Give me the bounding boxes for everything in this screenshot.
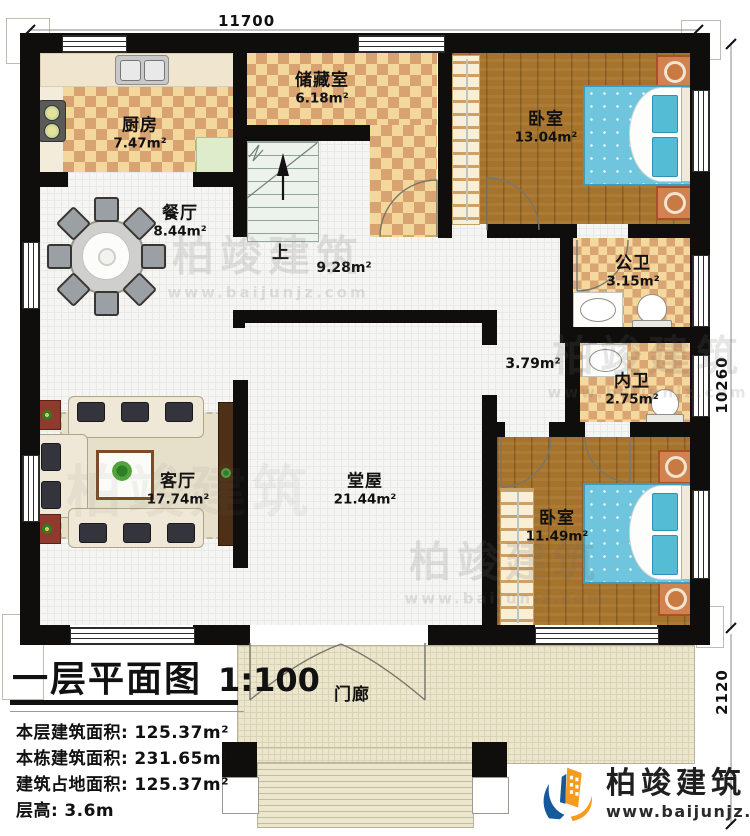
- window: [22, 455, 40, 522]
- dining-chair: [94, 197, 119, 222]
- sofa-cushion: [121, 402, 149, 422]
- porch-column-base: [472, 777, 509, 814]
- nightstand: [656, 186, 694, 220]
- wall: [565, 343, 580, 422]
- sofa-bottom: [68, 508, 204, 548]
- dining-chair: [94, 291, 119, 316]
- sink-basin: [580, 298, 616, 322]
- brand-text-block: 柏竣建筑 www.baijunjz.com: [606, 769, 750, 821]
- window: [62, 35, 127, 53]
- window: [692, 90, 710, 172]
- brand-logo: 柏竣建筑 www.baijunjz.com: [540, 762, 750, 828]
- window: [692, 490, 710, 579]
- ensuite-bath-label: 内卫 2.75m²: [605, 372, 658, 407]
- burner-icon: [44, 123, 60, 139]
- dimension-bottom-right: 2120: [713, 669, 731, 715]
- brand-logo-icon: [540, 762, 598, 828]
- stat-row: 本栋建筑面积:231.65m²: [16, 746, 229, 772]
- bedroom-top-label: 卧室 13.04m²: [515, 110, 578, 145]
- bed: [583, 483, 694, 584]
- burner-icon: [44, 105, 60, 121]
- plan-scale: 1:100: [218, 661, 320, 699]
- wall: [560, 238, 573, 327]
- window: [22, 242, 40, 309]
- plant: [112, 461, 132, 481]
- sofa-cushion: [77, 402, 105, 422]
- wall: [630, 422, 710, 437]
- staircase: [247, 141, 319, 242]
- pillow: [652, 137, 678, 177]
- porch-label: 门廊: [334, 686, 370, 706]
- wall: [233, 310, 245, 328]
- nightstand: [658, 450, 694, 484]
- plan-title-text: 一层平面图: [12, 650, 202, 702]
- hall-label: 堂屋 21.44m²: [334, 472, 397, 507]
- wall: [438, 53, 452, 238]
- window: [692, 255, 710, 327]
- storage-label: 储藏室 6.18m²: [295, 71, 349, 106]
- brand-url: www.baijunjz.com: [606, 802, 750, 821]
- pillow: [652, 535, 678, 575]
- sofa-cushion: [123, 523, 151, 543]
- dining-table-center: [98, 248, 116, 266]
- bedroom-bottom-label: 卧室 11.49m²: [526, 509, 589, 544]
- title-underline: [10, 700, 238, 705]
- plan-title: 一层平面图 1:100: [12, 650, 320, 702]
- pillow: [652, 95, 678, 133]
- sofa-cushion: [41, 443, 61, 471]
- pillow: [652, 493, 678, 531]
- sofa-cushion: [165, 402, 193, 422]
- wall: [628, 224, 710, 238]
- sofa-top: [68, 396, 204, 438]
- wall: [20, 53, 40, 645]
- wall: [193, 625, 250, 645]
- nightstand: [656, 55, 694, 89]
- porch-steps: [257, 762, 474, 828]
- toilet: [637, 294, 667, 323]
- wardrobe: [452, 55, 480, 225]
- sink-basin: [144, 60, 165, 81]
- dining-chair: [47, 244, 72, 269]
- kitchen-label: 厨房 7.47m²: [113, 116, 166, 151]
- stove: [38, 100, 66, 142]
- wall: [243, 125, 370, 141]
- wall: [233, 53, 247, 237]
- storage-passage-floor: [370, 125, 437, 237]
- wall: [40, 172, 68, 187]
- stair-area-label: 9.28m²: [316, 260, 371, 276]
- wall: [657, 625, 710, 645]
- dimension-top: 11700: [218, 12, 275, 30]
- sofa-cushion: [167, 523, 195, 543]
- living-label: 客厅 17.74m²: [147, 472, 210, 507]
- sink-basin: [120, 60, 141, 81]
- porch-column: [472, 742, 507, 777]
- nightstand: [658, 582, 694, 616]
- stat-row: 层高:3.6m: [16, 798, 114, 824]
- patio-step-line: [237, 747, 473, 748]
- wall: [20, 625, 70, 645]
- wall: [487, 224, 577, 238]
- sofa-cushion: [41, 481, 61, 509]
- wall: [428, 625, 535, 645]
- bathroom-sink: [573, 292, 623, 328]
- window: [70, 627, 195, 645]
- dining-label: 餐厅 8.44m²: [153, 204, 206, 239]
- wall: [560, 327, 710, 343]
- dining-chair: [141, 244, 166, 269]
- wall: [497, 422, 505, 437]
- wall: [193, 172, 247, 187]
- corridor-area-label: 3.79m²: [505, 356, 560, 372]
- floor-plan-canvas: 11700 10260 2120 厨房 7.47m² 储藏室 6.18m² 卧室…: [0, 0, 750, 836]
- wall: [233, 380, 248, 568]
- plant: [221, 468, 231, 478]
- stat-row: 本层建筑面积:125.37m²: [16, 720, 229, 746]
- bed: [583, 85, 694, 186]
- sofa-left: [34, 434, 88, 518]
- wall: [233, 310, 495, 323]
- title-underline-thin: [10, 711, 244, 712]
- window: [358, 35, 445, 53]
- sink-basin: [589, 349, 622, 372]
- window: [692, 355, 710, 417]
- fridge: [196, 137, 234, 174]
- stat-row: 建筑占地面积:125.37m²: [16, 772, 229, 798]
- sofa-cushion: [79, 523, 107, 543]
- wall: [482, 395, 497, 625]
- public-bath-label: 公卫 3.15m²: [606, 254, 659, 289]
- kitchen-sink: [115, 55, 169, 85]
- dimension-right: 10260: [713, 356, 731, 413]
- brand-name: 柏竣建筑: [606, 769, 750, 799]
- window: [535, 627, 659, 645]
- stair-up-label: 上: [272, 238, 289, 263]
- wall: [549, 422, 585, 437]
